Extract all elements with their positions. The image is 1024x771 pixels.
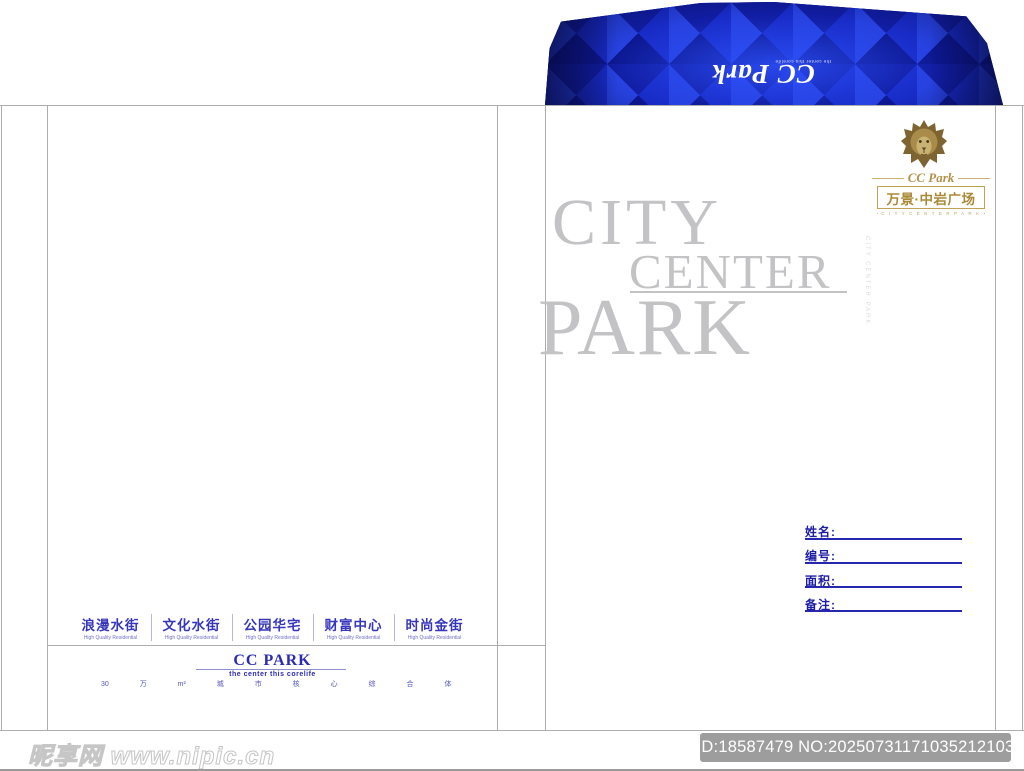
project-name-box: 万景·中岩广场 xyxy=(877,186,985,209)
street-name: 文化水街 xyxy=(163,614,221,634)
fold-line-v6 xyxy=(1022,105,1023,730)
street-name-row: 浪漫水街 High Quality Residential 文化水街 High … xyxy=(48,614,497,641)
fold-line-middle-left xyxy=(47,645,545,646)
gold-line-right xyxy=(958,178,990,179)
street-name: 财富中心 xyxy=(325,614,383,634)
street-sub: High Quality Residential xyxy=(325,635,383,641)
fold-line-v4 xyxy=(545,105,546,730)
gold-caption-line-right xyxy=(984,213,985,214)
logo-script-row: CC Park xyxy=(872,170,990,186)
fold-line-v5 xyxy=(995,105,996,730)
street-name: 浪漫水街 xyxy=(82,614,140,634)
design-preview: the center this corelife CC Park CC Park… xyxy=(0,0,1024,771)
street-name: 时尚金街 xyxy=(406,614,464,634)
street-item: 文化水街 High Quality Residential xyxy=(151,614,232,641)
street-sub: High Quality Residential xyxy=(406,635,464,641)
field-line-name xyxy=(805,538,962,540)
gold-caption-line-left xyxy=(877,213,878,214)
logo-caption: C I T Y C E N T E R P A R K xyxy=(881,211,980,216)
fold-line-bottom xyxy=(0,730,1024,731)
logo-caption-row: C I T Y C E N T E R P A R K xyxy=(877,211,985,216)
watermark-logo: 昵享网 www.nipic.cn xyxy=(28,736,275,771)
street-item: 财富中心 High Quality Residential xyxy=(313,614,394,641)
flap-brand-script: CC Park xyxy=(700,60,826,87)
street-item: 公园华宅 High Quality Residential xyxy=(232,614,313,641)
street-name: 公园华宅 xyxy=(244,614,302,634)
field-line-number xyxy=(805,562,962,564)
display-title-park: PARK xyxy=(538,288,752,368)
back-brand: CC PARK xyxy=(48,652,497,670)
fold-line-v1 xyxy=(1,105,2,730)
lion-logo-icon xyxy=(901,119,947,169)
street-item: 浪漫水街 High Quality Residential xyxy=(71,614,151,641)
gold-line-left xyxy=(872,178,904,179)
back-slogan: 30 万 m² 城 市 核 心 综 合 体 xyxy=(101,679,446,689)
logo-brand-script: CC Park xyxy=(908,170,955,186)
watermark-site-url: www.nipic.cn xyxy=(111,743,275,770)
envelope-flap: the center this corelife CC Park xyxy=(545,2,1003,105)
fold-line-top xyxy=(0,105,1024,106)
field-line-area xyxy=(805,586,962,588)
vertical-caption: CITY CENTER PARK xyxy=(864,236,870,346)
watermark-id-text: ID:18587479 NO:20250731171035212103 xyxy=(697,738,1015,757)
street-sub: High Quality Residential xyxy=(82,635,140,641)
field-line-remark xyxy=(805,610,962,612)
street-item: 时尚金街 High Quality Residential xyxy=(394,614,475,641)
street-sub: High Quality Residential xyxy=(163,635,221,641)
fold-line-v3 xyxy=(497,105,498,730)
back-tagline: the center this corelife xyxy=(48,671,497,678)
street-sub: High Quality Residential xyxy=(244,635,302,641)
watermark-site-name: 昵享网 xyxy=(28,743,103,770)
project-name: 万景·中岩广场 xyxy=(887,188,976,208)
watermark-id-badge: ID:18587479 NO:20250731171035212103 xyxy=(700,733,1011,762)
